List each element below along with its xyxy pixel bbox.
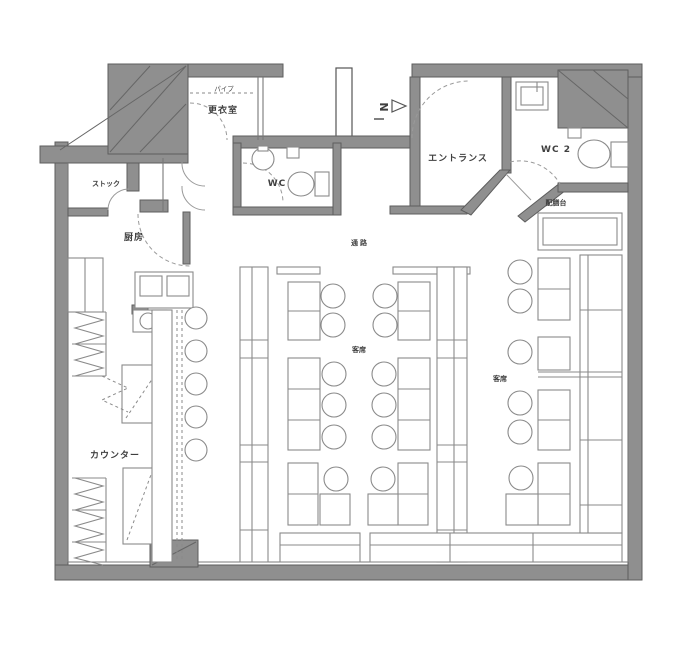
rail [277, 267, 320, 274]
chair [508, 391, 532, 415]
stock-door-arc [108, 189, 129, 210]
counter-stools [185, 307, 207, 461]
banquette [580, 255, 622, 533]
wc2-door-leaf [506, 174, 531, 200]
wc2-control-box [568, 128, 581, 138]
wall-right [628, 68, 642, 580]
chair [508, 260, 532, 284]
burner-1 [140, 276, 162, 296]
shelf-zigzag-3 [75, 478, 103, 510]
wc-label: WC [268, 179, 287, 189]
tables-group-4 [506, 463, 570, 525]
chair [371, 467, 395, 491]
wall-stock-right [127, 163, 139, 191]
closet-door-arc-2 [182, 186, 205, 210]
tables-group-3 [288, 463, 350, 525]
tables-group-2 [288, 358, 346, 450]
floor-plan-drawing: N パイプ 更衣室 WC エントランス WC 2 配膳台 ストック 厨房 通路 … [0, 0, 688, 657]
entrance-door-arc [412, 81, 469, 138]
tables-group-1 [508, 258, 570, 320]
north-triangle [392, 100, 406, 112]
chair [508, 340, 532, 364]
banquette [240, 267, 268, 562]
bottom-bench-right [370, 533, 622, 562]
tables-group-3 [368, 463, 428, 525]
wall-wc2-bottom [558, 183, 628, 192]
kitchen-label: 厨房 [124, 231, 144, 243]
shelf-zigzag-2 [75, 344, 103, 376]
wall-entrance-right [502, 77, 511, 173]
wc2-sink-basin [521, 87, 543, 105]
seating-right-wing [506, 213, 622, 533]
chair [372, 393, 396, 417]
shelving-zigzags [72, 312, 128, 565]
wall-entrance-left [410, 77, 420, 214]
north-label: N [377, 102, 390, 111]
chair [508, 420, 532, 444]
chair [373, 284, 397, 308]
closet-door-arc-1 [182, 162, 205, 186]
tables-group-1 [373, 282, 430, 340]
wc-toilet-tank [315, 172, 329, 196]
counter-body [152, 310, 172, 562]
seating-column-left [240, 267, 360, 562]
kitchen-equipment [68, 258, 193, 544]
north-arrow: N [374, 100, 406, 119]
chair [322, 425, 346, 449]
banquette [437, 267, 467, 562]
wall-wc-bottom [233, 207, 341, 215]
wall-entrance-bottom [390, 206, 467, 214]
chair [324, 467, 348, 491]
aisle-label: 通路 [351, 238, 369, 247]
wc2-toilet-tank [611, 142, 628, 167]
seating-right-label: 客席 [492, 374, 507, 383]
burner-2 [167, 276, 189, 296]
hanger-pipe-label: パイプ [214, 85, 234, 93]
wc2-label: WC 2 [541, 145, 571, 155]
kitchen-door-arc [138, 214, 190, 266]
seating-center-label: 客席 [351, 345, 366, 354]
wc2-toilet-bowl [578, 140, 610, 168]
bar-counter [152, 307, 207, 562]
tables-group-3 [508, 390, 570, 450]
tables-group-2 [508, 337, 570, 370]
wall-left [55, 142, 68, 580]
pillar-top-center [336, 68, 352, 138]
wall-diagonal-1 [461, 170, 510, 215]
stock-label: ストック [92, 179, 120, 188]
counter-label: カウンター [90, 449, 140, 461]
shelf-zigzag-4 [75, 510, 103, 542]
wc2-door-arc [510, 161, 560, 184]
shelf-zigzag-1 [75, 312, 103, 344]
wall-wc-left [233, 143, 241, 215]
column-top-right [558, 70, 628, 128]
wall-wc-right [333, 143, 341, 215]
wc-toilet-bowl [288, 172, 314, 196]
wall-kitchen-partition [183, 212, 190, 264]
chair [373, 313, 397, 337]
wall-stock-bottom [68, 208, 108, 216]
wc-shelf [287, 147, 299, 158]
tables-group-2 [372, 358, 430, 450]
chair [322, 393, 346, 417]
wall-bottom [55, 565, 642, 580]
chair [321, 284, 345, 308]
serving-table-label: 配膳台 [546, 198, 567, 207]
wc-basin-tap [258, 146, 268, 151]
chair [508, 289, 532, 313]
entrance-label: エントランス [428, 153, 488, 164]
tables-group-1 [288, 282, 345, 340]
column-top-left [60, 64, 188, 154]
changing-room-label: 更衣室 [208, 104, 238, 116]
bottom-bench-left [280, 533, 360, 562]
chair [321, 313, 345, 337]
chair [372, 425, 396, 449]
chair [509, 466, 533, 490]
chair [322, 362, 346, 386]
wc-fixtures [252, 146, 329, 196]
wall-closet-stub [140, 200, 168, 212]
floor-plan-page: N パイプ 更衣室 WC エントランス WC 2 配膳台 ストック 厨房 通路 … [0, 0, 688, 657]
chair [372, 362, 396, 386]
